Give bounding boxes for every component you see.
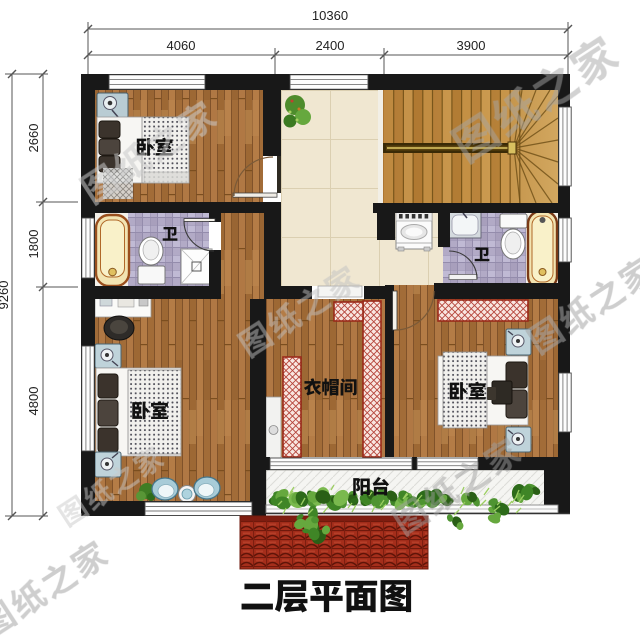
svg-text:2400: 2400 [316,38,345,53]
svg-text:1800: 1800 [26,230,41,259]
svg-text:9260: 9260 [0,281,11,310]
svg-text:10360: 10360 [312,8,348,23]
svg-text:3900: 3900 [457,38,486,53]
svg-text:2660: 2660 [26,124,41,153]
svg-text:4060: 4060 [167,38,196,53]
svg-text:4800: 4800 [26,387,41,416]
